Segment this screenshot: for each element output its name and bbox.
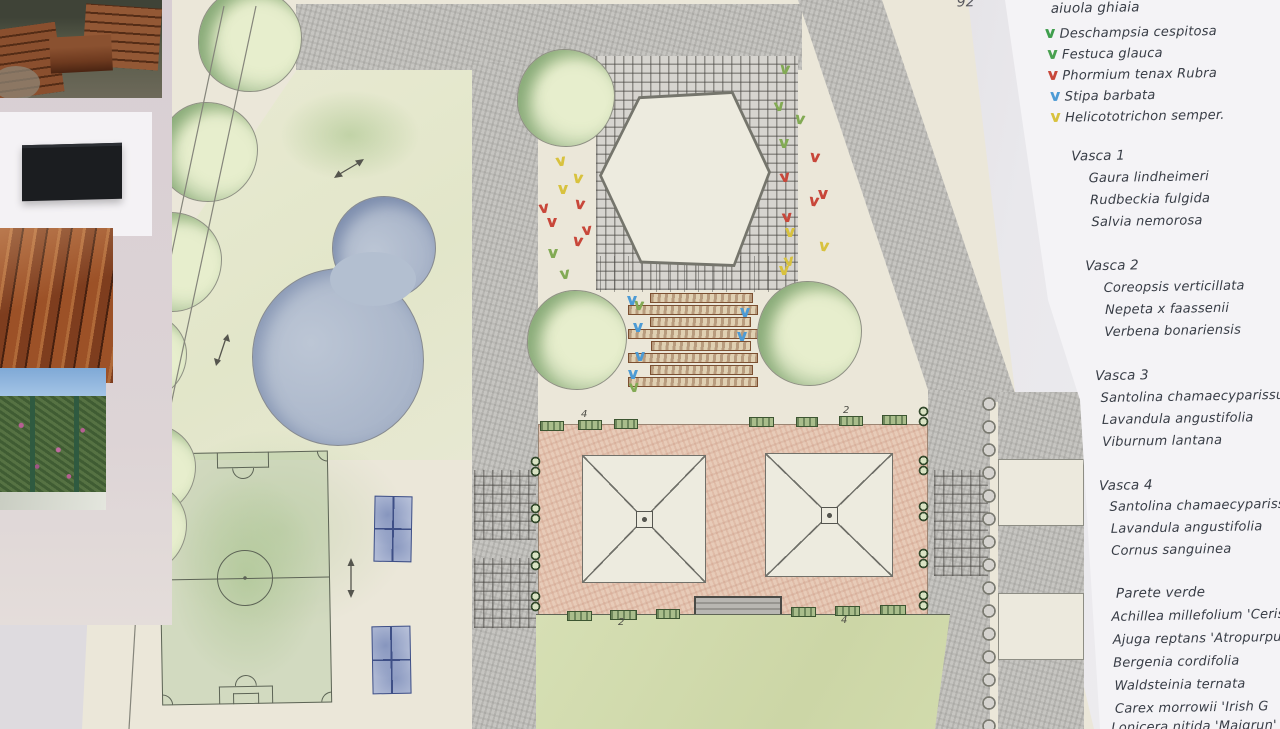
plant-v-icon [1045,27,1055,41]
plant-name: Waldsteinia ternata [1114,677,1245,694]
gravel-bed-item: Phormium tenax Rubra [1048,62,1217,84]
gravel-bed-item: Festuca glauca [1047,42,1163,63]
plant-name: Verbena bonariensis [1104,323,1241,340]
plant-name: Bergenia cordifolia [1113,654,1240,671]
plant-name: Lavandula angustifolia [1102,410,1254,428]
plant-name: Carex morrowii 'Irish G [1115,699,1269,717]
plant-v-icon [1051,111,1061,125]
gravel-bed-item: Stipa barbata [1050,84,1155,105]
plant-v-icon [1047,48,1057,62]
section-title: Parete verde [1116,584,1206,602]
plant-name: Helicototrichon semper. [1065,108,1225,126]
plant-name: Deschampsia cespitosa [1059,24,1217,42]
plant-name: Lavandula angustifolia [1111,519,1263,537]
section-title: Vasca 2 [1085,257,1139,274]
plant-name: Rudbeckia fulgida [1090,191,1210,208]
gravel-bed-item: Deschampsia cespitosa [1045,20,1217,42]
plant-name: Santolina chamaecyparissus [1109,497,1280,515]
garden-design-board: 4224 [0,0,1280,729]
plant-name: Ajuga reptans 'Atropurpurea' [1113,629,1280,647]
plant-v-icon [1050,90,1060,104]
plant-name: Salvia nemorosa [1091,213,1202,230]
notes-panel: 92 aiuola ghiaia Deschampsia cespitosa F… [0,0,1280,729]
plant-name: Achillea millefolium 'Cerise Qu [1111,606,1280,625]
plant-name: Festuca glauca [1062,46,1163,63]
page-number: 92 [956,0,974,10]
plant-name: Santolina chamaecyparissus [1100,388,1280,406]
gravel-bed-item: Helicototrichon semper. [1050,104,1224,126]
section-title: Vasca 1 [1071,148,1125,165]
plant-v-icon [1048,69,1058,83]
plant-name: Gaura lindheimeri [1089,169,1210,186]
plant-name: Viburnum lantana [1102,433,1222,450]
plant-name: Nepeta x faassenii [1105,301,1229,318]
plant-name: Cornus sanguinea [1111,542,1231,559]
plant-name: Lonicera nitida 'Maigrun' [1111,718,1277,729]
section-title: Vasca 4 [1099,477,1153,494]
plant-name: Coreopsis verticillata [1104,279,1245,296]
plant-name: Phormium tenax Rubra [1062,66,1217,84]
plant-name: Stipa barbata [1065,88,1156,105]
gravel-bed-title: aiuola ghiaia [1051,0,1140,17]
section-title: Vasca 3 [1095,367,1149,384]
